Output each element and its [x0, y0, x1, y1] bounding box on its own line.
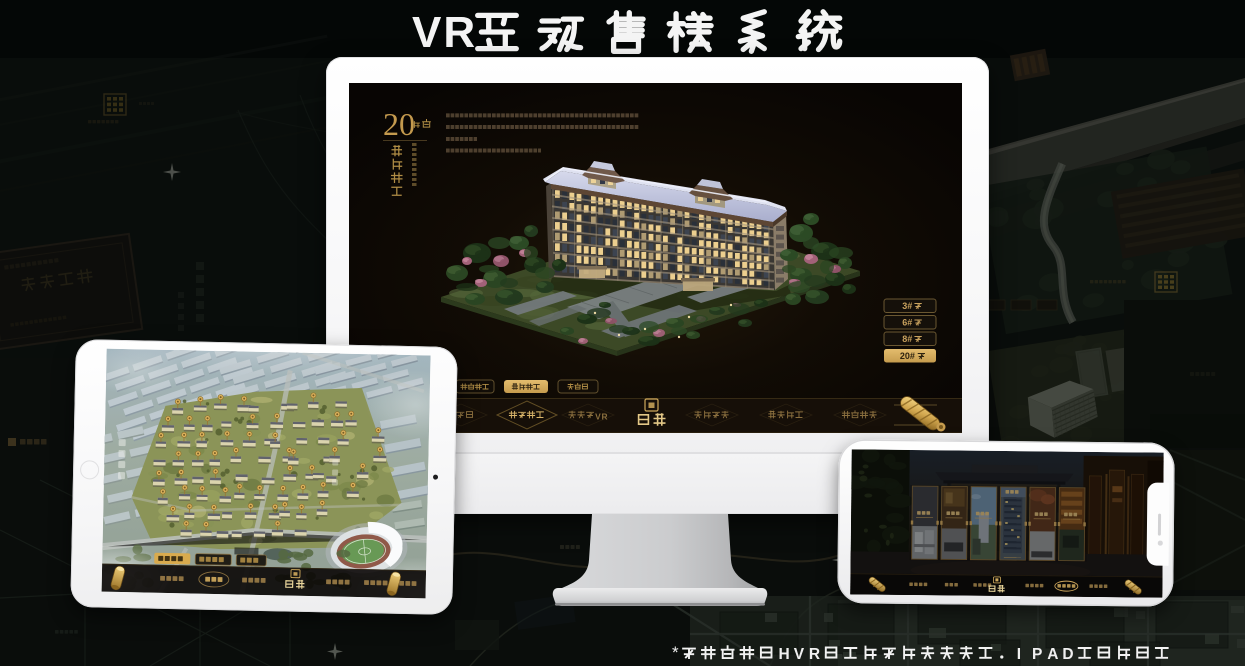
svg-text:R: R	[809, 646, 824, 663]
svg-text:A: A	[1047, 646, 1062, 663]
svg-text:V: V	[794, 646, 808, 663]
svg-text:6#: 6#	[902, 318, 912, 328]
svg-text:I: I	[1017, 646, 1025, 663]
svg-text:H: H	[779, 646, 794, 663]
svg-text:20: 20	[383, 106, 415, 142]
svg-text:3#: 3#	[902, 301, 912, 311]
svg-text:*: *	[672, 643, 679, 662]
svg-text:8#: 8#	[902, 334, 912, 344]
svg-text:D: D	[1062, 646, 1077, 663]
svg-text:VR: VR	[412, 8, 477, 57]
svg-text:P: P	[1032, 646, 1046, 663]
svg-text:R: R	[602, 412, 608, 422]
svg-text:20#: 20#	[900, 351, 915, 361]
svg-text:V: V	[595, 412, 601, 422]
